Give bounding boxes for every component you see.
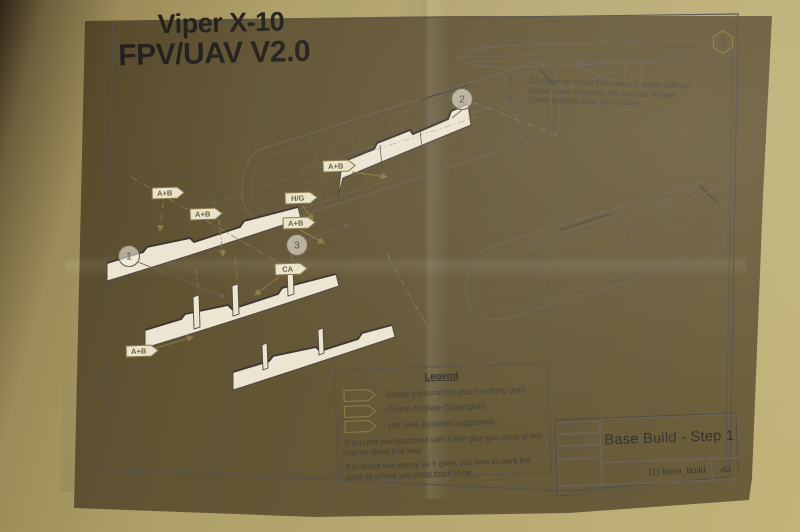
svg-text:H/G: H/G [291, 194, 305, 203]
balloon-3-number: 3 [294, 241, 300, 252]
title-line1: Viper X-10 [157, 8, 309, 38]
title-label: TITLE [603, 419, 614, 424]
legend-note-1: If you are well practiced with a Hot glu… [345, 432, 544, 458]
step-3-number: 3. [508, 94, 520, 104]
legend-flag-ca-icon: CA [343, 404, 377, 418]
balloon-1-number: 1 [126, 252, 132, 263]
legend-flag-hg-icon: H/G [344, 419, 378, 433]
drawing-file-name: (1) base_build [643, 459, 712, 483]
legend-ca-text: - Cyano Acrylate (Superglue) [382, 402, 485, 415]
flag-a-plus-b-1: A+B [152, 187, 184, 199]
hex-badge-number: 1 [720, 38, 725, 48]
svg-text:A+B: A+B [131, 346, 147, 356]
title-line2: FPV/UAV V2.0 [118, 37, 310, 71]
title-block: Drawn by: Dr M.J.Black Checked by: Base … [555, 413, 740, 497]
flag-a-plus-b-2: A+B [190, 208, 222, 220]
step-1-number: 1. [508, 75, 520, 85]
photo-scene: 1 [0, 0, 800, 532]
balloon-2-number: 2 [459, 95, 465, 106]
paper-size: A3 [711, 458, 740, 481]
legend-hotglue-text: - Hot Glue (optional suggested) [383, 417, 494, 430]
drawing-title: Base Build - Step 1 [600, 414, 740, 463]
flag-a-plus-b-3: A+B [283, 217, 315, 229]
construction-lines [131, 71, 740, 328]
svg-text:A+B: A+B [195, 209, 211, 219]
sheet-title: Viper X-10 FPV/UAV V2.0 [117, 8, 310, 71]
print-showthrough [410, 259, 620, 340]
flag-a-plus-b-4: A+B [126, 345, 158, 357]
empty-cell [557, 458, 602, 487]
legend-flag-a-plus-b-icon: A+B [343, 388, 377, 402]
legend-box: Legend A+B - Epoxy (optional hot glue lo… [334, 362, 552, 480]
legend-epoxy-text: - Epoxy (optional hot glue low temp gun) [382, 385, 525, 399]
flag-hg: H/G [285, 192, 317, 204]
base-half-lower [466, 182, 726, 320]
step-2-number: 2. [508, 85, 520, 95]
svg-text:A+B: A+B [328, 161, 344, 171]
drawing-sheet: 1 [0, 0, 800, 532]
drawing-number-label: Drawing (2/16) [601, 461, 644, 485]
flag-ca: CA [275, 263, 307, 275]
svg-text:H/G: H/G [350, 423, 365, 432]
subfin-parts-exploded [107, 207, 395, 390]
svg-text:A+B: A+B [157, 188, 173, 198]
svg-text:CA: CA [351, 407, 363, 416]
svg-text:CA: CA [282, 265, 294, 274]
svg-text:A+B: A+B [348, 392, 365, 402]
svg-text:A+B: A+B [288, 218, 304, 228]
